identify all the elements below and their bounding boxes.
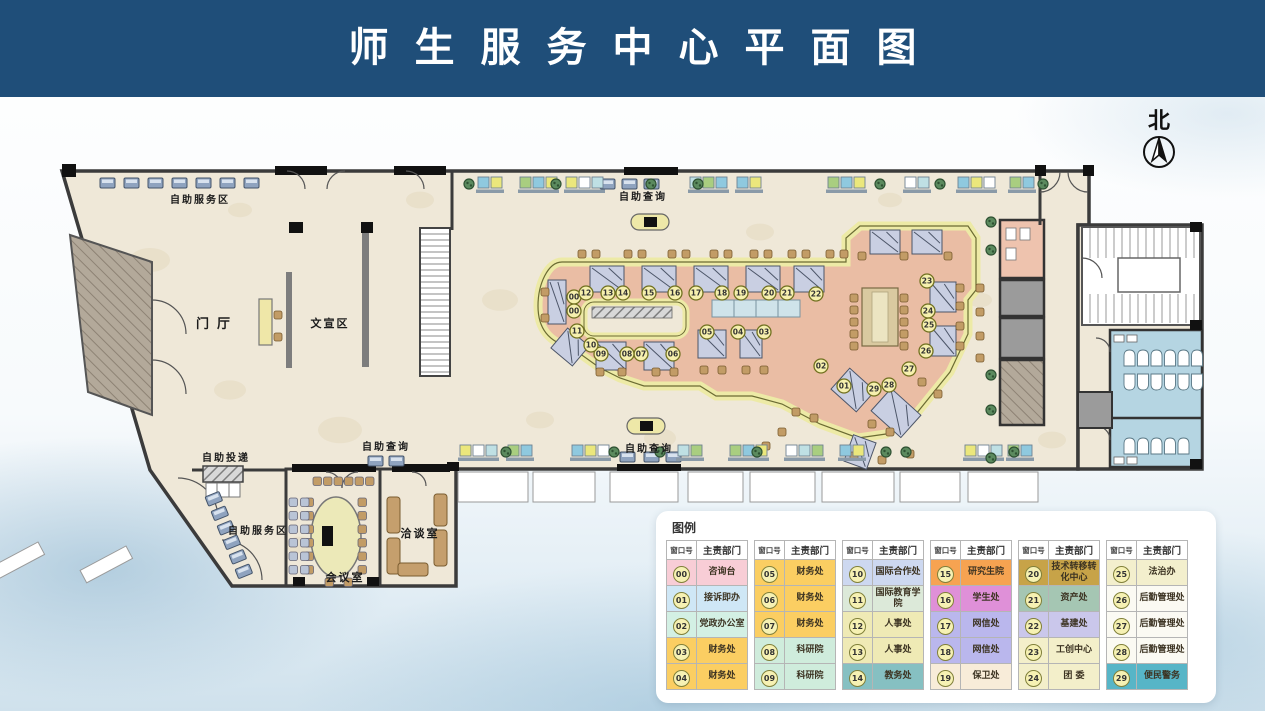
legend-col-header: 窗口号 xyxy=(1019,541,1049,560)
exterior-step xyxy=(0,542,45,579)
svg-text:09: 09 xyxy=(596,350,606,359)
floor-stain xyxy=(482,289,518,311)
legend-row: 11国际教育学院 xyxy=(843,586,924,612)
chair xyxy=(976,308,984,316)
chair xyxy=(301,566,310,575)
plant xyxy=(901,447,911,457)
waiting-seat xyxy=(918,177,929,188)
svg-text:00: 00 xyxy=(569,307,579,316)
chair xyxy=(652,368,660,376)
chair xyxy=(944,252,952,260)
wall-column xyxy=(367,577,379,586)
chair xyxy=(868,420,876,428)
legend-window-number: 23 xyxy=(1025,644,1042,661)
toilet-stall xyxy=(1165,350,1176,366)
legend-window-number: 24 xyxy=(1025,670,1042,687)
right-wing xyxy=(1078,222,1202,469)
floor-stain xyxy=(526,412,554,429)
window-marker-28: 28 xyxy=(882,378,896,392)
chair xyxy=(886,428,894,436)
waiting-seat xyxy=(566,177,577,188)
partition-wall xyxy=(362,225,369,367)
conference-table xyxy=(311,497,361,577)
chair xyxy=(289,566,298,575)
area-label-entrance-hall: 门厅 xyxy=(196,316,238,332)
toilet-stall xyxy=(1124,374,1135,390)
waiting-seat xyxy=(971,177,982,188)
chair xyxy=(638,250,646,258)
legend-row: 25法治办 xyxy=(1107,560,1188,586)
exterior-window xyxy=(822,472,894,502)
chair xyxy=(840,250,848,258)
chair xyxy=(366,477,375,486)
svg-text:02: 02 xyxy=(816,362,826,371)
legend-window-number: 07 xyxy=(761,618,778,635)
plant xyxy=(986,217,996,227)
legend-department-cell: 财务处 xyxy=(697,638,748,664)
north-label: 北 xyxy=(1148,109,1170,134)
legend-row: 16学生处 xyxy=(931,586,1012,612)
service-desk xyxy=(548,280,566,324)
window-marker-17: 17 xyxy=(689,286,703,300)
legend-number-cell: 26 xyxy=(1107,586,1137,612)
waiting-seat xyxy=(579,177,590,188)
waiting-seat xyxy=(592,177,603,188)
chair xyxy=(718,366,726,374)
chair xyxy=(355,477,364,486)
plant xyxy=(986,245,996,255)
window-marker-24: 24 xyxy=(921,304,935,318)
legend-window-number: 26 xyxy=(1113,592,1130,609)
plant xyxy=(551,179,561,189)
chair xyxy=(900,306,908,314)
svg-text:07: 07 xyxy=(636,350,646,359)
plant xyxy=(986,370,996,380)
exterior-window xyxy=(968,472,1038,502)
legend-col-header: 窗口号 xyxy=(931,541,961,560)
chair xyxy=(682,250,690,258)
legend-col-header: 窗口号 xyxy=(755,541,785,560)
chair xyxy=(301,539,310,548)
plant xyxy=(986,405,996,415)
bench-rail xyxy=(570,458,611,462)
toilet-stall xyxy=(1124,438,1135,454)
chair xyxy=(850,306,858,314)
chair xyxy=(358,525,367,534)
legend-number-cell: 13 xyxy=(843,638,873,664)
chair xyxy=(700,366,708,374)
exterior-window xyxy=(610,472,678,502)
area-label-self-service-top: 自助服务区 xyxy=(170,193,230,206)
chair xyxy=(918,378,926,386)
legend-window-number: 12 xyxy=(849,618,866,635)
legend-col-header: 窗口号 xyxy=(1107,541,1137,560)
legend-department-cell: 党政办公室 xyxy=(697,612,748,638)
svg-text:00: 00 xyxy=(569,293,579,302)
sink xyxy=(1127,457,1137,464)
legend-department-cell: 教务处 xyxy=(873,664,924,690)
chair xyxy=(900,318,908,326)
waiting-seat xyxy=(1010,177,1021,188)
window-marker-19: 19 xyxy=(734,286,748,300)
legend-number-cell: 03 xyxy=(667,638,697,664)
waiting-seat xyxy=(730,445,741,456)
legend-window-number: 13 xyxy=(849,644,866,661)
toilet-stall xyxy=(1192,374,1203,390)
chair xyxy=(826,250,834,258)
legend-window-number: 03 xyxy=(673,644,690,661)
chair xyxy=(358,512,367,521)
chair xyxy=(900,294,908,302)
svg-text:01: 01 xyxy=(839,382,849,391)
service-desk xyxy=(870,230,900,254)
wall-column xyxy=(1083,165,1094,176)
waiting-seat xyxy=(478,177,489,188)
legend-col-header: 主责部门 xyxy=(873,541,924,560)
svg-text:11: 11 xyxy=(572,327,582,336)
plant xyxy=(501,447,511,457)
self-service-kiosk xyxy=(389,456,404,466)
waiting-seat xyxy=(1021,445,1032,456)
svg-text:22: 22 xyxy=(811,290,821,299)
waiting-seat xyxy=(520,177,531,188)
self-service-kiosk xyxy=(368,456,383,466)
legend-window-number: 08 xyxy=(761,644,778,661)
legend-department-cell: 咨询台 xyxy=(697,560,748,586)
svg-text:16: 16 xyxy=(670,289,680,298)
legend-number-cell: 05 xyxy=(755,560,785,586)
bench-rail xyxy=(518,190,559,194)
legend-window-number: 01 xyxy=(673,592,690,609)
window-marker-02: 02 xyxy=(814,359,828,373)
svg-text:17: 17 xyxy=(691,289,701,298)
legend-row: 12人事处 xyxy=(843,612,924,638)
legend-number-cell: 29 xyxy=(1107,664,1137,690)
legend-number-cell: 08 xyxy=(755,638,785,664)
window-marker-08: 08 xyxy=(620,347,634,361)
toilet-stall xyxy=(1178,374,1189,390)
plant xyxy=(986,453,996,463)
window-marker-27: 27 xyxy=(902,362,916,376)
legend-department-cell: 人事处 xyxy=(873,612,924,638)
chair xyxy=(976,332,984,340)
elevator xyxy=(1000,318,1044,358)
bench-rail xyxy=(963,458,1004,462)
bench-rail xyxy=(1008,190,1036,194)
legend-row: 17网信处 xyxy=(931,612,1012,638)
legend-window-number: 17 xyxy=(937,618,954,635)
legend-number-cell: 28 xyxy=(1107,638,1137,664)
floor-stain xyxy=(746,224,774,241)
legend-row: 24团 委 xyxy=(1019,664,1100,690)
exterior-window xyxy=(900,472,960,502)
legend-col-header: 主责部门 xyxy=(785,541,836,560)
legend-row: 28后勤管理处 xyxy=(1107,638,1188,664)
bench-rail xyxy=(826,190,867,194)
legend-window-number: 20 xyxy=(1025,566,1042,583)
legend-number-cell: 07 xyxy=(755,612,785,638)
chair xyxy=(764,250,772,258)
waiting-seat xyxy=(598,445,609,456)
chair xyxy=(289,552,298,561)
floor-stain xyxy=(406,192,434,209)
legend-row: 21资产处 xyxy=(1019,586,1100,612)
self-service-kiosk xyxy=(172,178,187,188)
legend-department-cell: 网信处 xyxy=(961,638,1012,664)
legend-window-number: 19 xyxy=(937,670,954,687)
chair xyxy=(324,477,333,486)
bench-rail xyxy=(564,190,605,194)
area-label-self-inquiry-bottom: 自助查询 xyxy=(625,442,673,455)
chair xyxy=(956,322,964,330)
legend-window-number: 16 xyxy=(937,592,954,609)
window-marker-13: 13 xyxy=(601,286,615,300)
chair xyxy=(788,250,796,258)
legend-number-cell: 25 xyxy=(1107,560,1137,586)
chair xyxy=(850,294,858,302)
waiting-seat xyxy=(984,177,995,188)
legend-department-cell: 后勤管理处 xyxy=(1137,612,1188,638)
toilet-stall xyxy=(1151,438,1162,454)
chair xyxy=(596,368,604,376)
legend-row: 13人事处 xyxy=(843,638,924,664)
chair xyxy=(900,342,908,350)
bench-rail xyxy=(688,190,729,194)
legend-department-cell: 财务处 xyxy=(785,612,836,638)
legend-row: 09科研院 xyxy=(755,664,836,690)
toilet-stall xyxy=(1151,350,1162,366)
elevator xyxy=(1078,392,1112,428)
toilet-stall xyxy=(1138,374,1149,390)
svg-text:28: 28 xyxy=(884,381,894,390)
svg-text:20: 20 xyxy=(764,289,774,298)
north-needle-right xyxy=(1159,138,1166,161)
legend-department-cell: 国际教育学院 xyxy=(873,586,924,612)
window-marker-11: 11 xyxy=(570,324,584,338)
legend-col-header: 窗口号 xyxy=(667,541,697,560)
waiting-seat xyxy=(737,177,748,188)
bench-rail xyxy=(838,458,866,462)
legend-number-cell: 11 xyxy=(843,586,873,612)
legend-department-cell: 学生处 xyxy=(961,586,1012,612)
legend-window-number: 28 xyxy=(1113,644,1130,661)
svg-text:25: 25 xyxy=(924,321,934,330)
chair xyxy=(289,512,298,521)
legend-number-cell: 06 xyxy=(755,586,785,612)
chair xyxy=(956,284,964,292)
legend-number-cell: 27 xyxy=(1107,612,1137,638)
legend-window-number: 14 xyxy=(849,670,866,687)
waiting-seat xyxy=(460,445,471,456)
legend-window-number: 11 xyxy=(849,592,866,609)
legend-department-cell: 财务处 xyxy=(697,664,748,690)
window-marker-14: 14 xyxy=(616,286,630,300)
svg-text:26: 26 xyxy=(921,347,931,356)
self-service-kiosk xyxy=(196,178,211,188)
chair xyxy=(956,302,964,310)
svg-text:27: 27 xyxy=(904,365,914,374)
legend-department-cell: 接诉即办 xyxy=(697,586,748,612)
chair xyxy=(578,250,586,258)
legend-number-cell: 17 xyxy=(931,612,961,638)
sink xyxy=(1114,457,1124,464)
waiting-seat xyxy=(1023,177,1034,188)
waiting-seat xyxy=(486,445,497,456)
chair xyxy=(742,366,750,374)
legend-row: 03财务处 xyxy=(667,638,748,664)
wall-column xyxy=(289,222,303,233)
legend-number-cell: 02 xyxy=(667,612,697,638)
legend-window-number: 04 xyxy=(673,670,690,687)
legend-window-number: 18 xyxy=(937,644,954,661)
legend-row: 00咨询台 xyxy=(667,560,748,586)
window-marker-12: 12 xyxy=(579,286,593,300)
bench-rail xyxy=(956,190,997,194)
north-needle-left xyxy=(1152,138,1159,161)
wall-column xyxy=(447,462,459,471)
legend-window-number: 00 xyxy=(673,566,690,583)
svg-text:24: 24 xyxy=(923,307,933,316)
legend-department-cell: 财务处 xyxy=(785,560,836,586)
legend-row: 01接诉即办 xyxy=(667,586,748,612)
legend-department-cell: 研究生院 xyxy=(961,560,1012,586)
legend-department-cell: 法治办 xyxy=(1137,560,1188,586)
svg-text:03: 03 xyxy=(759,328,769,337)
legend-department-cell: 便民警务 xyxy=(1137,664,1188,690)
legend-tables: 窗口号主责部门00咨询台01接诉即办02党政办公室03财务处04财务处窗口号主责… xyxy=(656,540,1216,690)
svg-text:21: 21 xyxy=(782,289,792,298)
chair xyxy=(760,366,768,374)
legend-window-number: 25 xyxy=(1113,566,1130,583)
legend-row: 19保卫处 xyxy=(931,664,1012,690)
window-marker-03: 03 xyxy=(757,325,771,339)
window-marker-04: 04 xyxy=(731,325,745,339)
bench-rail xyxy=(728,458,769,462)
waiting-seat xyxy=(841,177,852,188)
chair xyxy=(710,250,718,258)
legend-col-header: 主责部门 xyxy=(697,541,748,560)
island-table xyxy=(862,288,898,346)
plant xyxy=(464,179,474,189)
chair xyxy=(358,498,367,507)
window-marker-05: 05 xyxy=(700,325,714,339)
chair xyxy=(289,539,298,548)
chair xyxy=(358,552,367,561)
legend-row: 06财务处 xyxy=(755,586,836,612)
svg-text:19: 19 xyxy=(736,289,746,298)
chair xyxy=(850,318,858,326)
legend-department-cell: 工创中心 xyxy=(1049,638,1100,664)
svg-text:15: 15 xyxy=(644,289,654,298)
chair xyxy=(810,414,818,422)
exterior-window xyxy=(533,472,595,502)
elevator xyxy=(1000,280,1044,316)
waiting-seat xyxy=(533,177,544,188)
window-marker-25: 25 xyxy=(922,318,936,332)
legend-row: 04财务处 xyxy=(667,664,748,690)
self-service-kiosk xyxy=(244,178,259,188)
bench-rail xyxy=(784,458,825,462)
plant xyxy=(1038,179,1048,189)
legend-col-header: 主责部门 xyxy=(1137,541,1188,560)
bench-rail xyxy=(476,190,504,194)
svg-text:13: 13 xyxy=(603,289,613,298)
waiting-seat xyxy=(521,445,532,456)
sink xyxy=(1114,335,1124,342)
plant xyxy=(693,179,703,189)
waiting-seat xyxy=(854,177,865,188)
legend-department-cell: 科研院 xyxy=(785,664,836,690)
legend-number-cell: 24 xyxy=(1019,664,1049,690)
wall-column xyxy=(293,577,305,586)
chair xyxy=(618,368,626,376)
chair xyxy=(301,525,310,534)
legend-row: 08科研院 xyxy=(755,638,836,664)
chair xyxy=(358,539,367,548)
exterior-step xyxy=(80,546,132,583)
svg-text:23: 23 xyxy=(922,277,932,286)
legend-row: 26后勤管理处 xyxy=(1107,586,1188,612)
legend-number-cell: 14 xyxy=(843,664,873,690)
legend-number-cell: 12 xyxy=(843,612,873,638)
plant xyxy=(935,179,945,189)
svg-text:18: 18 xyxy=(717,289,727,298)
chair xyxy=(858,252,866,260)
page: 师生服务中心平面图 xyxy=(0,0,1265,711)
sofa xyxy=(434,494,447,526)
wall-column xyxy=(1190,320,1202,330)
exterior-window xyxy=(688,472,743,502)
legend-row: 07财务处 xyxy=(755,612,836,638)
chair xyxy=(668,250,676,258)
svg-text:04: 04 xyxy=(733,328,743,337)
chair xyxy=(750,250,758,258)
legend-department-cell: 国际合作处 xyxy=(873,560,924,586)
waiting-seat xyxy=(691,445,702,456)
legend-table: 窗口号主责部门25法治办26后勤管理处27后勤管理处28后勤管理处29便民警务 xyxy=(1106,540,1188,690)
legend-row: 18网信处 xyxy=(931,638,1012,664)
legend-window-number: 09 xyxy=(761,670,778,687)
chair xyxy=(334,477,343,486)
area-label-self-delivery: 自助投递 xyxy=(202,451,250,464)
chair xyxy=(934,390,942,398)
window-marker-00: 00 xyxy=(567,304,581,318)
plant xyxy=(609,447,619,457)
window-marker-29: 29 xyxy=(867,382,881,396)
legend-window-number: 15 xyxy=(937,566,954,583)
waiting-seat xyxy=(958,177,969,188)
plant xyxy=(646,179,656,189)
stair-landing xyxy=(1118,258,1180,292)
legend-department-cell: 科研院 xyxy=(785,638,836,664)
window-marker-06: 06 xyxy=(666,347,680,361)
legend-row: 05财务处 xyxy=(755,560,836,586)
chair xyxy=(289,525,298,534)
chair xyxy=(778,428,786,436)
floor-stain xyxy=(228,203,252,217)
window-marker-20: 20 xyxy=(762,286,776,300)
toilet-stall xyxy=(1138,438,1149,454)
area-label-meeting-room: 会议室 xyxy=(326,570,365,584)
chair xyxy=(900,252,908,260)
legend-title: 图例 xyxy=(672,519,1216,536)
legend-table: 窗口号主责部门20技术转移转化中心21资产处22基建处23工创中心24团 委 xyxy=(1018,540,1100,690)
legend-row: 02党政办公室 xyxy=(667,612,748,638)
legend-row: 27后勤管理处 xyxy=(1107,612,1188,638)
waiting-seat xyxy=(491,177,502,188)
waiting-seat xyxy=(750,177,761,188)
bench-rail xyxy=(676,458,704,462)
